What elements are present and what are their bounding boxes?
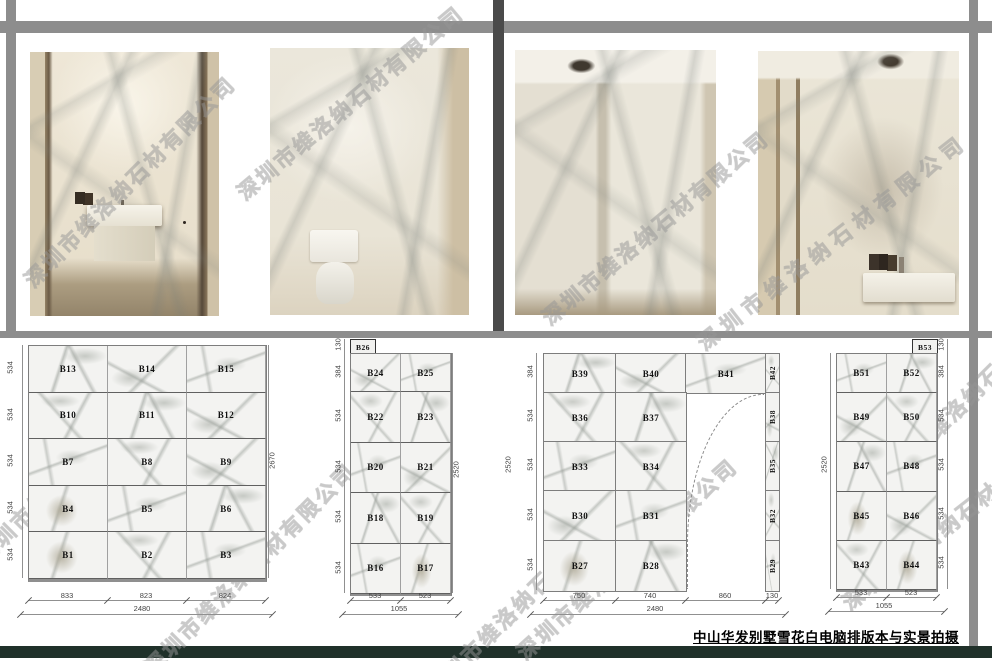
panel-cell: B11	[108, 393, 187, 440]
slab-layout-1: B13 B14 B15 B10 B11 B12 B7 B8 B9 B4 B5 B…	[28, 345, 267, 582]
panel-label: B15	[218, 364, 235, 374]
bathroom-photo-corner	[515, 50, 716, 315]
dimension-tick	[782, 611, 789, 618]
marble-veins	[270, 48, 469, 315]
dimension-label: 534	[526, 498, 535, 532]
panel-label: B19	[417, 513, 434, 523]
panel-label: B40	[643, 369, 660, 379]
panel-cell: B17	[401, 544, 451, 595]
door-swing-arc	[687, 394, 764, 589]
panel-label: B45	[853, 511, 870, 521]
frame-bar-vertical-left	[6, 0, 16, 338]
panel-cell: B48	[887, 442, 937, 491]
panel-label: B18	[367, 513, 384, 523]
dimension-label: 534	[334, 399, 343, 433]
dimension-label: 534	[526, 548, 535, 582]
dimension-tick	[269, 611, 276, 618]
panel-label: B35	[768, 459, 777, 473]
panel-label: B14	[139, 364, 156, 374]
panel-label: B48	[903, 461, 920, 471]
panel-label: B6	[220, 504, 232, 514]
panel-cell: B9	[187, 439, 266, 486]
dimension-line	[530, 614, 785, 615]
dimension-label: 2670	[268, 444, 277, 478]
panel-label: B13	[60, 364, 77, 374]
bathroom-photo-vanity	[758, 51, 959, 315]
dimension-label: 534	[6, 444, 15, 478]
panel-label: B53	[918, 343, 932, 352]
panel-cell: B21	[401, 443, 451, 494]
panel-cell: B37	[615, 392, 687, 443]
panel-cell: B39	[543, 353, 617, 394]
panel-cell: B40	[615, 353, 687, 394]
dimension-label: 2480	[134, 604, 151, 613]
panel-label: B12	[218, 410, 235, 420]
panel-cell: B15	[187, 346, 266, 393]
panel-label: B24	[367, 368, 384, 378]
panel-cell: B10	[29, 393, 108, 440]
dimension-line	[536, 353, 537, 590]
panel-cell: B29	[765, 540, 780, 592]
panel-cell: B50	[887, 393, 937, 442]
dimension-line	[830, 353, 831, 589]
panel-cell: B18	[351, 493, 401, 544]
panel-label: B34	[643, 462, 660, 472]
panel-label: B51	[853, 368, 870, 378]
bathroom-photo-sink	[30, 52, 219, 316]
dimension-tick	[455, 611, 462, 618]
panel-label: B8	[141, 457, 153, 467]
dimension-label: 534	[526, 399, 535, 433]
dimension-label: 823	[140, 591, 153, 600]
dimension-line	[828, 611, 944, 612]
slab-layout-4: B51 B52 B49 B50 B47 B48 B45 B46 B43 B44	[836, 353, 938, 592]
dimension-label: 824	[219, 591, 232, 600]
dimension-tick	[941, 608, 948, 615]
panel-label: B23	[417, 412, 434, 422]
panel-cell: B14	[108, 346, 187, 393]
panel-label: B4	[62, 504, 74, 514]
panel-label: B39	[572, 369, 589, 379]
dimension-label: 534	[526, 448, 535, 482]
panel-cell: B3	[187, 532, 266, 579]
panel-cell: B27	[543, 540, 617, 592]
marble-veins	[515, 50, 716, 315]
dimension-label: 523	[419, 591, 432, 600]
dimension-label: 384	[334, 355, 343, 389]
panel-label: B11	[139, 410, 155, 420]
panel-cell: B45	[837, 492, 887, 541]
panel-label: B42	[768, 366, 777, 380]
panel-cell: B34	[615, 441, 687, 492]
sink-counter	[87, 205, 163, 226]
dimension-label: 523	[905, 588, 918, 597]
dimension-line	[22, 345, 23, 578]
panel-label: B25	[417, 368, 434, 378]
panel-cell: B2	[108, 532, 187, 579]
panel-cell: B4	[29, 486, 108, 533]
panel-label: B29	[768, 559, 777, 573]
dimension-label: 384	[937, 355, 946, 389]
panel-label: B26	[356, 343, 370, 352]
panel-label: B21	[417, 462, 434, 472]
dimension-label: 2520	[452, 453, 461, 487]
dimension-label: 534	[334, 551, 343, 585]
dimension-tick	[262, 597, 269, 604]
dimension-line	[342, 614, 458, 615]
panel-label: B3	[220, 550, 232, 560]
panel-label: B20	[367, 462, 384, 472]
panel-label: B37	[643, 413, 660, 423]
panel-cell: B12	[187, 393, 266, 440]
dimension-label: 130	[766, 591, 779, 600]
dimension-line	[344, 339, 345, 593]
panel-label: B7	[62, 457, 74, 467]
panel-cell: B44	[887, 541, 937, 590]
dimension-label: 534	[937, 448, 946, 482]
panel-label: B16	[367, 563, 384, 573]
panel-cell: B38	[765, 392, 780, 443]
dimension-label: 534	[6, 491, 15, 525]
panel-label: B32	[768, 509, 777, 523]
dimension-tick	[933, 594, 940, 601]
frame-bar-vertical-right	[969, 0, 978, 646]
panel-label: B50	[903, 412, 920, 422]
dimension-label: 534	[6, 398, 15, 432]
toiletry-bottles	[869, 254, 879, 270]
faucet	[899, 257, 904, 273]
panel-cell: B46	[887, 492, 937, 541]
panel-cell: B5	[108, 486, 187, 533]
dimension-line	[20, 614, 272, 615]
panel-cell: B30	[543, 490, 617, 542]
panel-cell: B36	[543, 392, 617, 443]
panel-cell: B35	[765, 441, 780, 492]
panel-cell: B52	[887, 354, 937, 393]
panel-cell: B16	[351, 544, 401, 595]
bathroom-photo-toilet	[270, 48, 469, 315]
panel-label: B22	[367, 412, 384, 422]
panel-cell: B41	[685, 353, 767, 394]
marble-veins	[30, 52, 219, 316]
dimension-label: 2480	[647, 604, 664, 613]
toiletry-bottles	[75, 192, 84, 204]
footer-bar	[0, 646, 992, 658]
panel-label: B47	[853, 461, 870, 471]
dimension-label: 860	[719, 591, 732, 600]
panel-label: B28	[643, 561, 660, 571]
dimension-label: 2520	[504, 448, 513, 482]
sink-pedestal	[94, 226, 154, 260]
panel-label: B2	[141, 550, 153, 560]
dimension-line	[543, 600, 778, 601]
dimension-line	[947, 339, 948, 589]
dimension-label: 1055	[391, 604, 408, 613]
panel-cell: B25	[401, 354, 451, 392]
panel-cell: B23	[401, 392, 451, 443]
panel-cell: B33	[543, 441, 617, 492]
vanity-sink	[863, 273, 955, 302]
toilet-bowl	[316, 262, 354, 305]
panel-cell: B28	[615, 540, 687, 592]
panel-cell: B32	[765, 490, 780, 542]
dimension-label: 833	[61, 591, 74, 600]
panel-cell: B13	[29, 346, 108, 393]
dimension-label: 1055	[876, 601, 893, 610]
frame-bar-vertical-center	[493, 0, 504, 331]
page-title: 中山华发别墅雪花白电脑排版本与实景拍摄	[693, 626, 959, 646]
dimension-label: 534	[937, 546, 946, 580]
panel-cell: B1	[29, 532, 108, 579]
toilet-tank	[310, 230, 358, 262]
document-page: 深圳市维洛纳石材有限公司 深圳市维洛纳石材有限公司 深圳市维洛纳石材有限公司 深…	[0, 0, 992, 661]
dimension-label: 750	[573, 591, 586, 600]
dimension-label: 534	[334, 500, 343, 534]
dimension-label: 533	[855, 588, 868, 597]
dimension-label: 534	[937, 399, 946, 433]
panel-cell: B31	[615, 490, 687, 542]
panel-cell: B20	[351, 443, 401, 494]
panel-label: B5	[141, 504, 153, 514]
panel-label: B41	[718, 369, 735, 379]
panel-label: B38	[768, 410, 777, 424]
panel-cell: B42	[765, 353, 780, 394]
dimension-label: 534	[6, 538, 15, 572]
dimension-tick	[447, 597, 454, 604]
dimension-label: 534	[6, 351, 15, 385]
panel-cell: B8	[108, 439, 187, 486]
panel-label: B30	[572, 511, 589, 521]
panel-cell: B51	[837, 354, 887, 393]
panel-cell: B22	[351, 392, 401, 443]
dimension-label: 534	[334, 450, 343, 484]
dimension-line	[28, 600, 265, 601]
panel-cell: B43	[837, 541, 887, 590]
panel-label: B10	[60, 410, 77, 420]
panel-label: B1	[62, 550, 74, 560]
panel-cell: B24	[351, 354, 401, 392]
dimension-label: 533	[369, 591, 382, 600]
slab-layout-2: B24 B25 B22 B23 B20 B21 B18 B19 B16 B17	[350, 353, 452, 596]
panel-label: B49	[853, 412, 870, 422]
panel-label: B27	[572, 561, 589, 571]
panel-cell: B19	[401, 493, 451, 544]
panel-cell: B7	[29, 439, 108, 486]
dimension-label: 740	[644, 591, 657, 600]
dimension-label: 2520	[820, 448, 829, 482]
panel-cell: B6	[187, 486, 266, 533]
panel-label: B44	[903, 560, 920, 570]
panel-label: B36	[572, 413, 589, 423]
panel-label: B9	[220, 457, 232, 467]
panel-label: B46	[903, 511, 920, 521]
panel-label: B52	[903, 368, 920, 378]
panel-cell: B47	[837, 442, 887, 491]
panel-cell: B49	[837, 393, 887, 442]
dimension-label: 384	[526, 355, 535, 389]
dimension-label: 534	[937, 497, 946, 531]
panel-label: B17	[417, 563, 434, 573]
panel-label: B43	[853, 560, 870, 570]
frame-bar-horizontal-middle	[0, 331, 992, 338]
panel-label: B33	[572, 462, 589, 472]
panel-label: B31	[643, 511, 660, 521]
